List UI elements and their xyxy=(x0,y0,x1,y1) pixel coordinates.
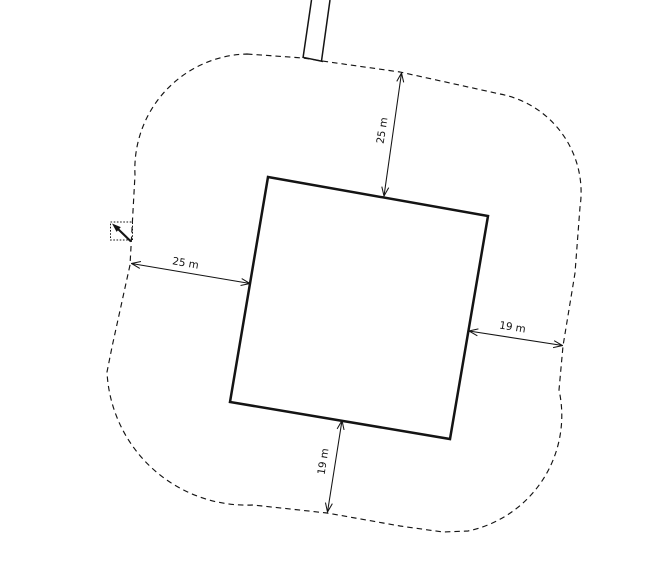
dimension-east: 19 m xyxy=(469,319,563,345)
dimension-south-label: 19 m xyxy=(316,447,332,475)
dimension-north: 25 m xyxy=(375,73,402,196)
dimension-north-label: 25 m xyxy=(375,116,391,144)
select-cursor-icon xyxy=(111,222,133,242)
dimension-west: 25 m xyxy=(132,255,251,283)
drawing-canvas[interactable]: 25 m 25 m 19 m 19 m xyxy=(0,0,645,574)
dimension-south-arrow xyxy=(328,421,343,513)
dimension-west-label: 25 m xyxy=(171,255,199,271)
dimension-south: 19 m xyxy=(316,421,342,513)
dimension-east-label: 19 m xyxy=(498,319,526,335)
road-stub[interactable] xyxy=(303,0,331,62)
road-end-cap xyxy=(303,57,324,61)
road-edges xyxy=(303,0,330,61)
site-plan-drawing: 25 m 25 m 19 m 19 m xyxy=(0,0,645,574)
building-footprint[interactable] xyxy=(230,177,488,439)
